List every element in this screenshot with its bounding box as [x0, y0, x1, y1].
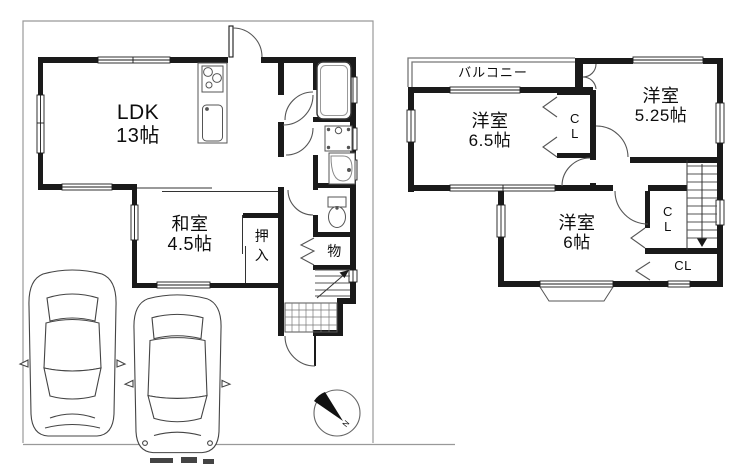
room-525-name: 洋室	[607, 86, 715, 106]
toilet-icon	[328, 197, 346, 228]
room-ldk-name: LDK	[88, 101, 188, 125]
closet-label-mid: C L	[565, 112, 585, 142]
closet-mid-c: C	[565, 112, 585, 127]
oshiire-char-1: 押	[252, 227, 272, 246]
oshiire-char-2: 入	[252, 246, 272, 265]
floorplan-linework: N	[0, 0, 735, 464]
closet-right-c: C	[658, 205, 678, 220]
washer-pan-icon	[325, 126, 352, 151]
room-65-size: 6.5帖	[435, 131, 545, 150]
room-6-name: 洋室	[536, 213, 618, 233]
car-1	[20, 270, 125, 436]
room-washitsu-size: 4.5帖	[140, 234, 240, 254]
car-2	[125, 295, 230, 453]
room-label-balcony: バルコニー	[443, 66, 543, 81]
room-525-size: 5.25帖	[607, 106, 715, 125]
room-65-name: 洋室	[435, 111, 545, 131]
storage-name: 物	[327, 243, 342, 259]
room-washitsu-name: 和室	[140, 214, 240, 234]
closet-mid-l: L	[565, 127, 585, 142]
stairs-2f	[687, 160, 717, 250]
kitchen-fixtures	[198, 63, 227, 143]
room-label-ldk: LDK 13帖	[88, 101, 188, 147]
stairs-1f	[315, 270, 350, 298]
floorplan-canvas: N LDK 13帖 和室 4.5帖 押 入 物 バルコニー 洋室 6.5帖 洋室…	[0, 0, 735, 464]
room-label-yoshitsu-525: 洋室 5.25帖	[607, 86, 715, 125]
closet-right-l: L	[658, 220, 678, 235]
room-label-yoshitsu-6: 洋室 6帖	[536, 213, 618, 252]
closet-label-right: C L	[658, 205, 678, 235]
bathtub-icon	[317, 62, 351, 119]
room-label-washitsu: 和室 4.5帖	[140, 214, 240, 254]
kitchen-sink-icon	[203, 105, 223, 141]
vanity-sink-icon	[329, 153, 355, 184]
room-label-storage: 物	[322, 244, 347, 260]
entrance-tile	[285, 303, 337, 332]
caption-fragments	[150, 457, 214, 464]
room-ldk-size: 13帖	[88, 125, 188, 147]
room-6-size: 6帖	[536, 233, 618, 252]
closet-bottom-text: CL	[674, 258, 692, 273]
bay-window	[540, 287, 613, 301]
room-label-oshiire: 押 入	[252, 227, 272, 265]
closet-label-bottom: CL	[668, 259, 698, 274]
room-label-yoshitsu-65: 洋室 6.5帖	[435, 111, 545, 150]
compass-icon: N	[314, 390, 360, 436]
balcony-name: バルコニー	[458, 65, 528, 80]
